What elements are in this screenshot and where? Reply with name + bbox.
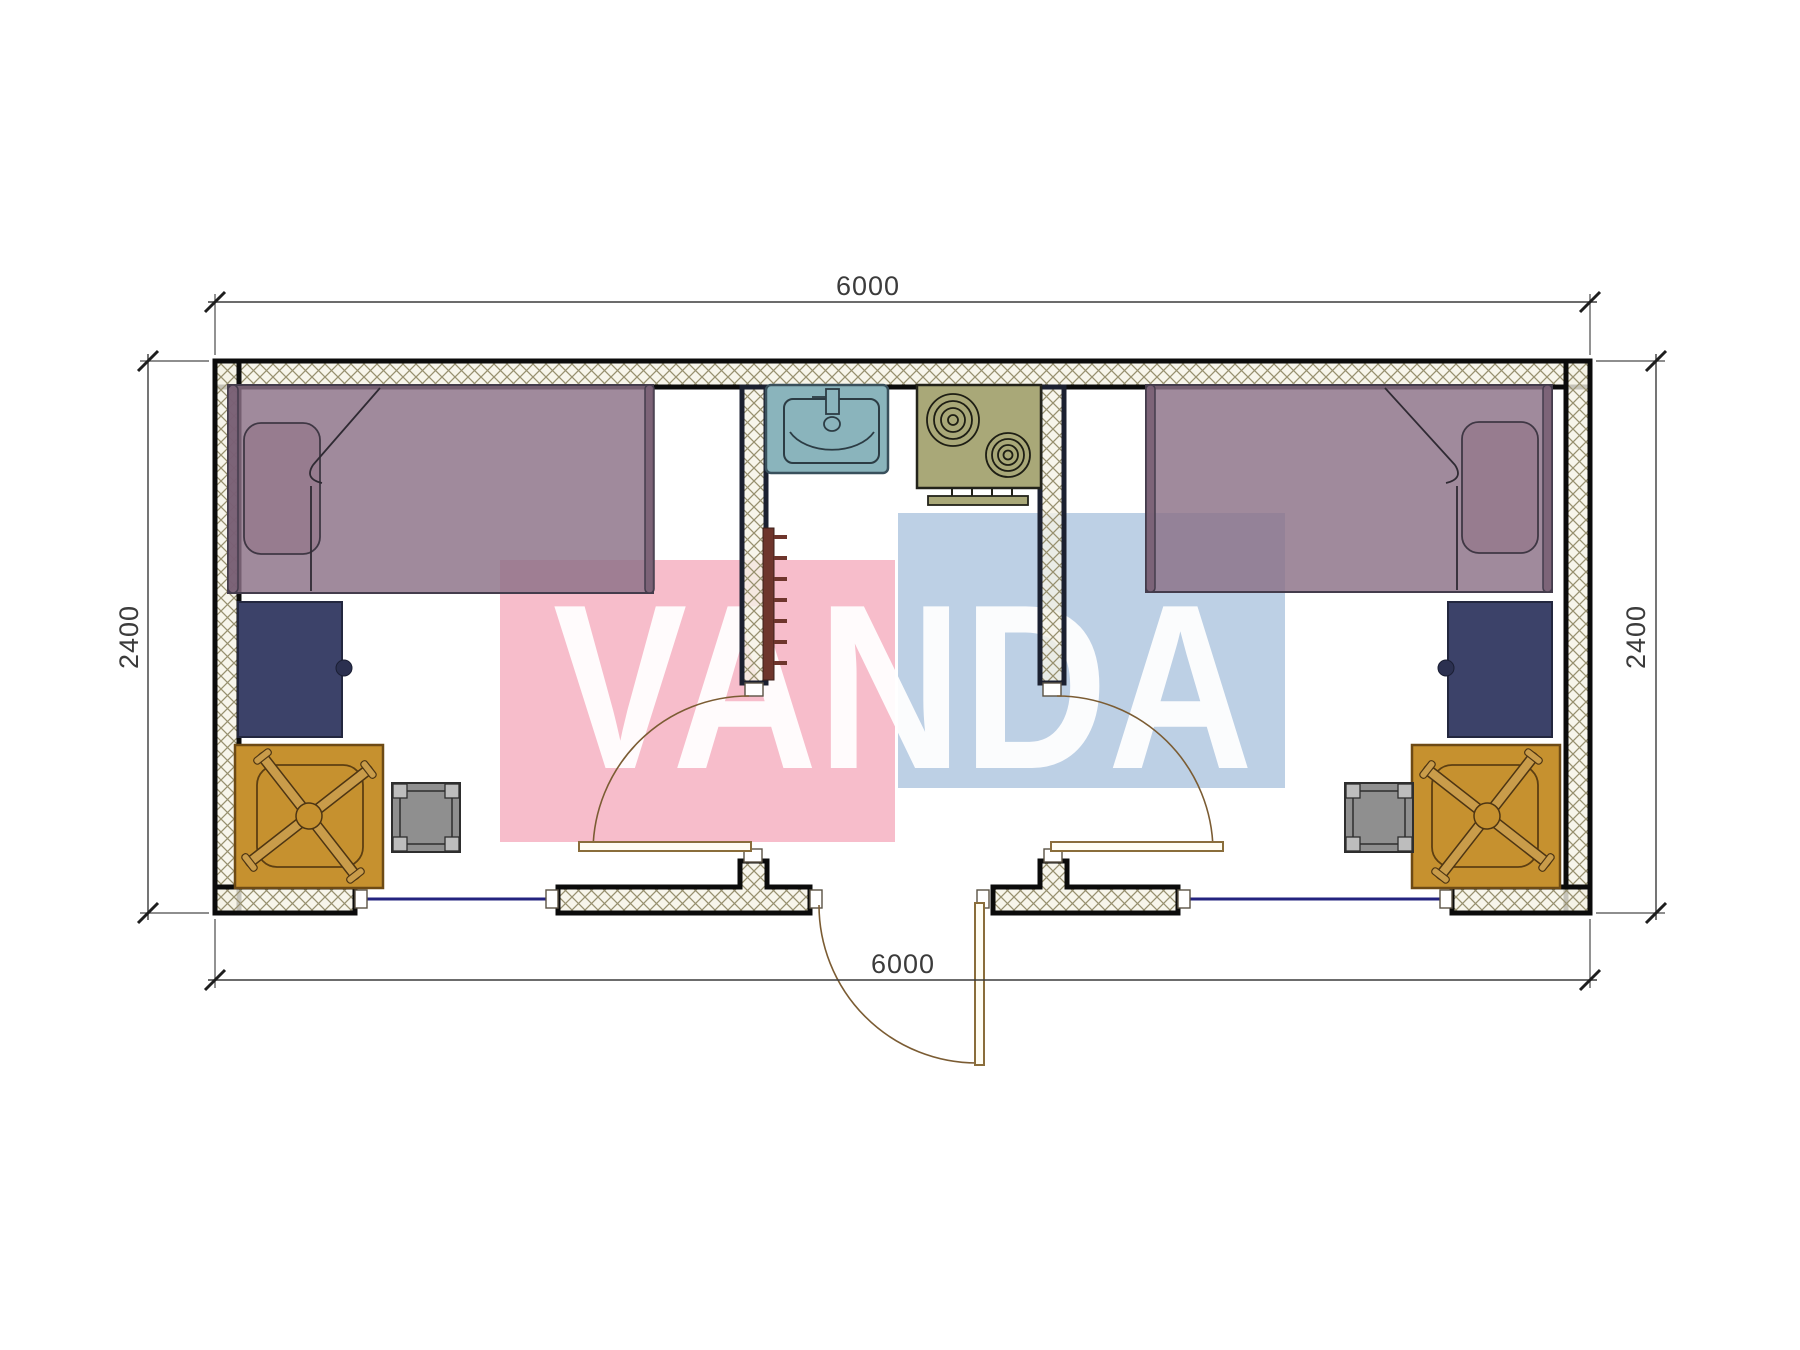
partition-jamb [1043,683,1061,696]
wall-bottom-left-tee [558,861,810,913]
bed-headboard [1543,385,1552,592]
window-jamb [1440,890,1452,908]
dimension-label-left: 2400 [114,605,144,669]
cabinet [1448,602,1552,737]
faucet [826,389,839,414]
cabinet-knob [336,660,352,676]
dimension-label-bottom: 6000 [871,949,935,979]
wall-top [215,361,1590,387]
watermark-text: VANDA [553,555,1253,818]
door-leaf-right-room [1051,842,1223,851]
stool-leg [445,784,459,798]
entrance-jamb [810,890,822,908]
window-jamb [1178,890,1190,908]
radiator [763,528,774,680]
stool-leg [445,837,459,851]
floor-plan-canvas: VANDA [0,0,1800,1350]
bed-footboard [645,385,654,593]
dimension-label-top: 6000 [836,271,900,301]
faucet-drain [824,417,840,431]
pillow [244,423,320,554]
door-leaf-left-room [579,842,751,851]
cabinet [238,602,342,737]
wall-bottom-right-tee [993,861,1178,913]
pillow [1462,422,1538,553]
stool-leg [1398,837,1412,851]
bed-footboard [1146,385,1155,592]
wall-partition-right [1040,387,1064,683]
partition-jamb [745,683,763,696]
door-arc-entrance [819,905,977,1063]
floor-plan-page: VANDA [0,0,1800,1350]
wall-right [1566,361,1590,913]
wall-partition-left [742,387,766,683]
window-jamb [355,890,367,908]
stool-leg [1346,837,1360,851]
bed-headboard [228,385,238,593]
wall-bottom-right [1452,887,1590,913]
dimension-label-right: 2400 [1621,605,1651,669]
stool-leg [1398,784,1412,798]
door-leaf-entrance [975,903,984,1065]
cabinet-knob [1438,660,1454,676]
wall-bottom-left [215,887,355,913]
stool-leg [393,837,407,851]
stool-leg [1346,784,1360,798]
stool-leg [393,784,407,798]
stove-shelf [928,496,1028,505]
window-jamb [546,890,558,908]
windows [355,890,1452,908]
